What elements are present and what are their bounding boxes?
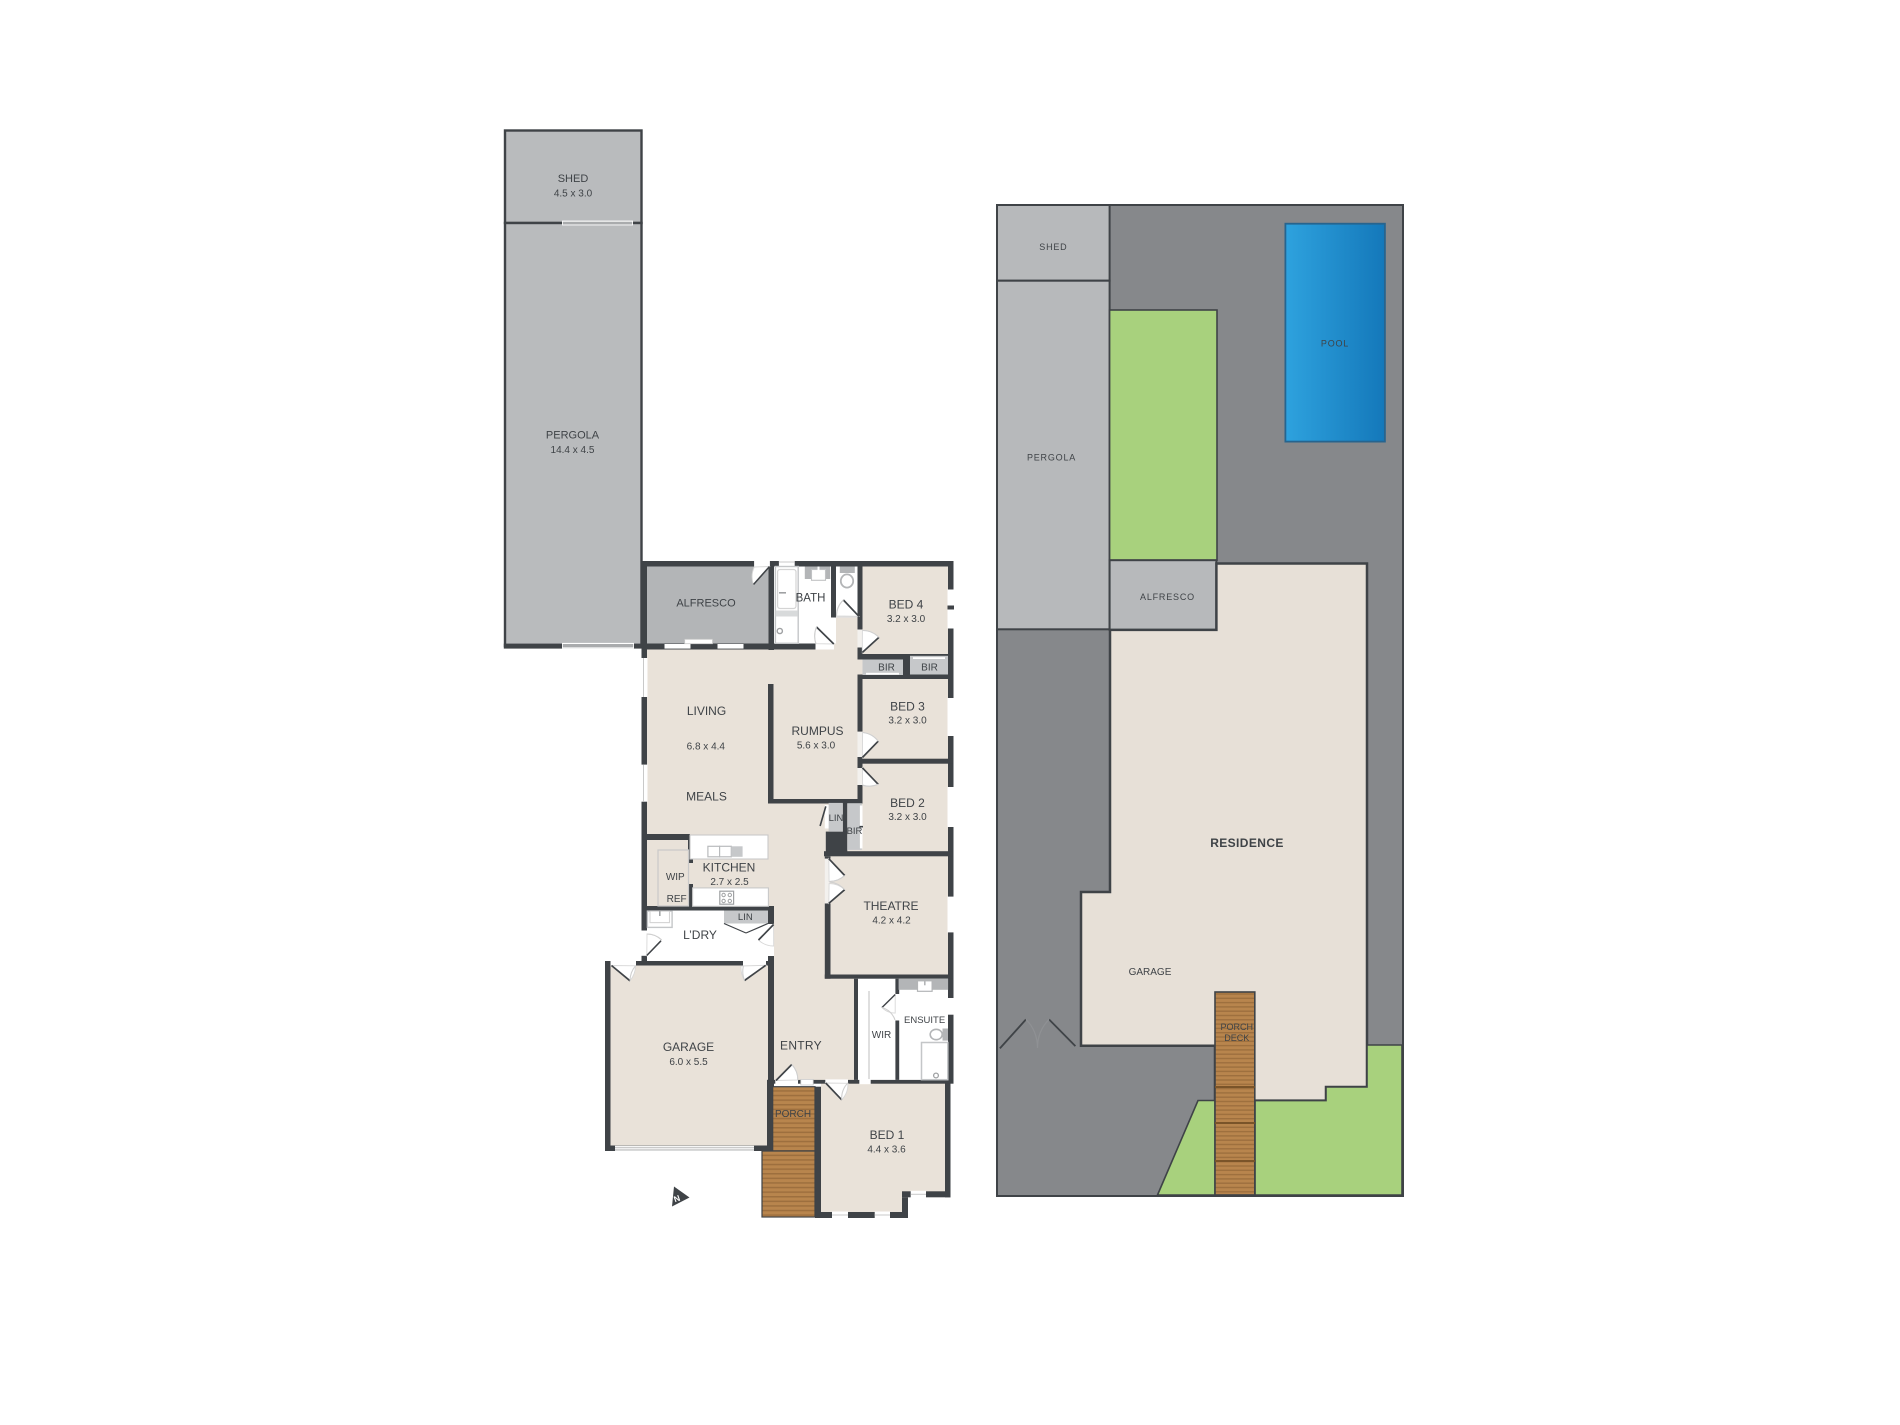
svg-text:SHED: SHED <box>1039 242 1067 252</box>
svg-text:PERGOLA: PERGOLA <box>1027 453 1076 463</box>
svg-text:4.4 x 3.6: 4.4 x 3.6 <box>867 1145 906 1156</box>
svg-text:3.2 x 3.0: 3.2 x 3.0 <box>887 614 926 625</box>
svg-text:BED 1: BED 1 <box>870 1128 905 1142</box>
svg-text:LIVING: LIVING <box>687 704 726 718</box>
svg-text:L’DRY: L’DRY <box>683 928 717 942</box>
svg-text:LIN: LIN <box>738 912 753 923</box>
svg-text:DECK: DECK <box>1224 1033 1249 1043</box>
svg-text:WIP: WIP <box>666 872 685 883</box>
svg-text:BIR: BIR <box>921 663 938 674</box>
svg-text:RESIDENCE: RESIDENCE <box>1210 836 1284 850</box>
svg-text:BED 3: BED 3 <box>890 700 925 714</box>
svg-text:BATH: BATH <box>796 593 826 605</box>
svg-text:PORCH: PORCH <box>1221 1022 1254 1032</box>
svg-text:GARAGE: GARAGE <box>1129 967 1172 978</box>
svg-text:PORCH: PORCH <box>775 1109 811 1120</box>
svg-text:4.2 x 4.2: 4.2 x 4.2 <box>872 916 911 927</box>
svg-text:BIR: BIR <box>878 663 895 674</box>
svg-text:KITCHEN: KITCHEN <box>703 861 756 875</box>
svg-text:WIR: WIR <box>872 1030 891 1041</box>
svg-text:POOL: POOL <box>1321 339 1349 349</box>
svg-text:SHED: SHED <box>558 173 589 185</box>
svg-text:ALFRESCO: ALFRESCO <box>1140 592 1195 602</box>
svg-text:REF: REF <box>667 894 687 905</box>
svg-text:LIN: LIN <box>829 813 844 824</box>
svg-text:4.5 x 3.0: 4.5 x 3.0 <box>554 189 593 200</box>
svg-text:THEATRE: THEATRE <box>863 899 918 913</box>
svg-text:BIR: BIR <box>847 826 863 837</box>
svg-text:PERGOLA: PERGOLA <box>546 430 600 442</box>
svg-text:BED 4: BED 4 <box>889 598 924 612</box>
svg-text:RUMPUS: RUMPUS <box>791 724 843 738</box>
svg-text:6.0 x 5.5: 6.0 x 5.5 <box>669 1057 708 1068</box>
svg-text:ENSUITE: ENSUITE <box>904 1015 945 1026</box>
svg-text:3.2 x 3.0: 3.2 x 3.0 <box>888 812 927 823</box>
svg-text:5.6 x 3.0: 5.6 x 3.0 <box>797 741 836 752</box>
svg-text:MEALS: MEALS <box>686 790 727 804</box>
svg-text:2.7 x 2.5: 2.7 x 2.5 <box>710 877 749 888</box>
svg-text:6.8 x 4.4: 6.8 x 4.4 <box>687 742 726 753</box>
svg-text:14.4 x 4.5: 14.4 x 4.5 <box>551 445 595 456</box>
svg-text:ALFRESCO: ALFRESCO <box>676 598 736 610</box>
svg-text:3.2 x 3.0: 3.2 x 3.0 <box>888 716 927 727</box>
svg-text:BED 2: BED 2 <box>890 796 925 810</box>
svg-text:ENTRY: ENTRY <box>780 1039 822 1053</box>
svg-text:GARAGE: GARAGE <box>663 1040 714 1054</box>
